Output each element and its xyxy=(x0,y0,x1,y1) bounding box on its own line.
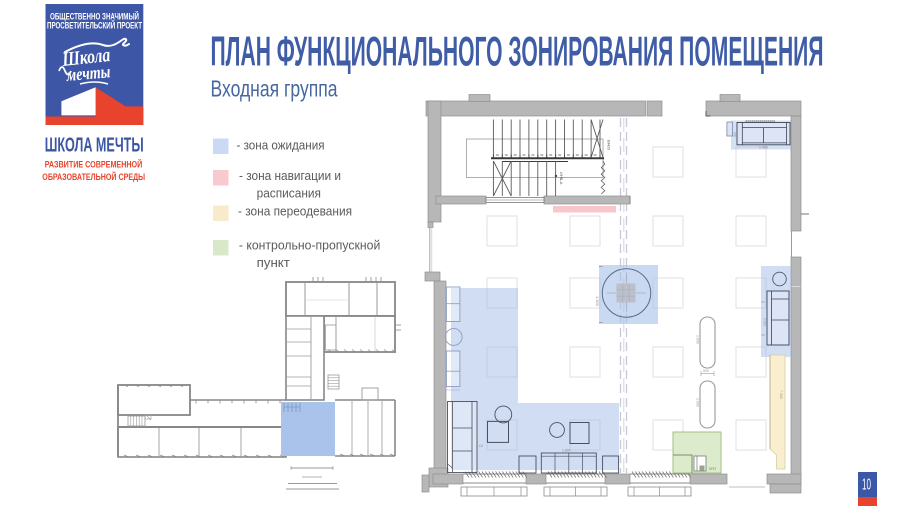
svg-text:1.500: 1.500 xyxy=(595,296,600,307)
svg-text:900: 900 xyxy=(733,132,737,138)
svg-text:1.600: 1.600 xyxy=(696,398,700,407)
svg-text:1.600: 1.600 xyxy=(696,335,700,344)
svg-text:пункт: пункт xyxy=(257,255,290,270)
svg-text:мечты: мечты xyxy=(65,61,111,85)
svg-text:ВН03: ВН03 xyxy=(607,140,612,151)
svg-text:- зона переодевания: - зона переодевания xyxy=(238,203,352,218)
svg-text:1.800: 1.800 xyxy=(562,449,571,453)
svg-text:- контрольно-пропускной: - контрольно-пропускной xyxy=(239,238,380,253)
svg-text:РАЗВИТИЕ СОВРЕМЕННОЙ: РАЗВИТИЕ СОВРЕМЕННОЙ xyxy=(45,159,143,171)
svg-text:7.360: 7.360 xyxy=(779,390,783,399)
svg-text:2.10: 2.10 xyxy=(476,444,483,448)
svg-text:1.400: 1.400 xyxy=(759,146,768,150)
svg-text:- зона ожидания: - зона ожидания xyxy=(237,138,325,153)
svg-text:КПП: КПП xyxy=(709,467,717,471)
svg-text:500: 500 xyxy=(703,369,709,373)
svg-text:ПРОСВЕТИТЕЛЬСКИЙ ПРОЕКТ: ПРОСВЕТИТЕЛЬСКИЙ ПРОЕКТ xyxy=(47,20,142,31)
svg-text:ПЛАН ФУНКЦИОНАЛЬНОГО ЗОНИРОВАН: ПЛАН ФУНКЦИОНАЛЬНОГО ЗОНИРОВАНИЯ ПОМЕЩЕН… xyxy=(211,28,824,75)
svg-text:ШКОЛА МЕЧТЫ: ШКОЛА МЕЧТЫ xyxy=(45,133,144,156)
svg-text:2.000: 2.000 xyxy=(763,318,767,326)
svg-text:Входная группа: Входная группа xyxy=(211,76,338,102)
svg-text:10: 10 xyxy=(862,477,871,494)
svg-text:ИНВ-А: ИНВ-А xyxy=(559,172,564,185)
svg-text:ОБРАЗОВАТЕЛЬНОЙ СРЕДЫ: ОБРАЗОВАТЕЛЬНОЙ СРЕДЫ xyxy=(42,171,145,183)
svg-text:расписания: расписания xyxy=(257,186,321,201)
svg-text:- зона навигации и: - зона навигации и xyxy=(239,168,341,183)
